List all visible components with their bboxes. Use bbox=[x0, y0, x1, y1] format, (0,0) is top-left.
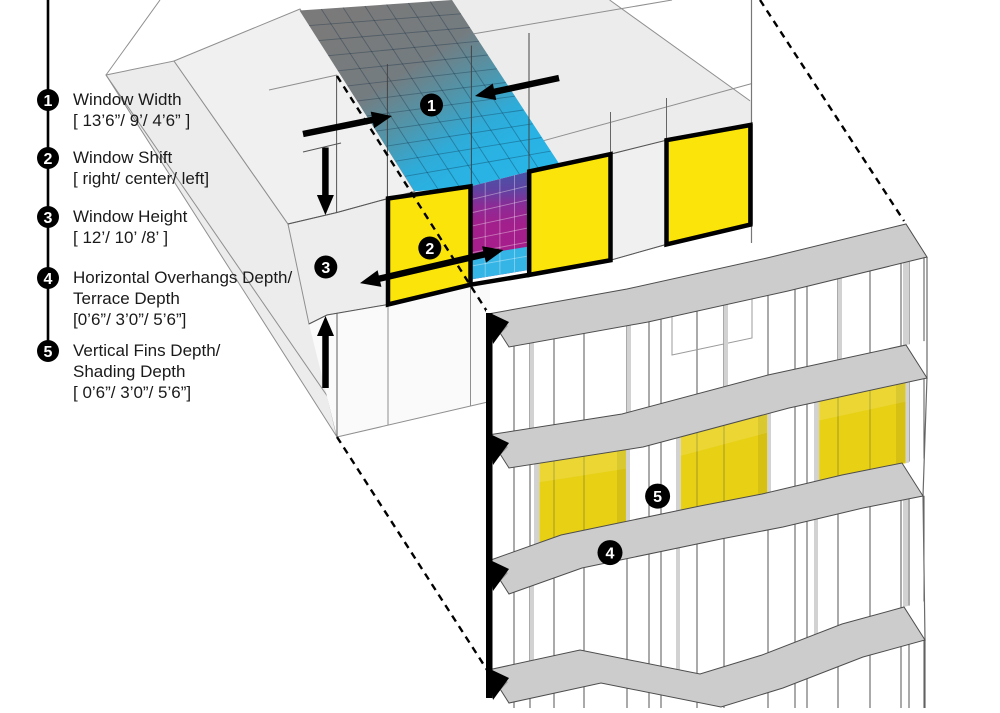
svg-text:[ right/ center/ left]: [ right/ center/ left] bbox=[73, 169, 209, 188]
svg-text:Terrace Depth: Terrace Depth bbox=[73, 289, 180, 308]
svg-text:Horizontal Overhangs Depth/: Horizontal Overhangs Depth/ bbox=[73, 268, 293, 287]
svg-text:Window Height: Window Height bbox=[73, 207, 188, 226]
svg-text:4: 4 bbox=[606, 545, 615, 562]
svg-text:3: 3 bbox=[44, 210, 53, 227]
svg-text:[ 13’6”/ 9’/ 4’6” ]: [ 13’6”/ 9’/ 4’6” ] bbox=[73, 111, 190, 130]
svg-text:2: 2 bbox=[44, 151, 53, 168]
svg-text:Window Width: Window Width bbox=[73, 90, 182, 109]
svg-text:1: 1 bbox=[44, 93, 53, 110]
svg-text:2: 2 bbox=[425, 241, 434, 258]
svg-text:5: 5 bbox=[44, 344, 53, 361]
svg-text:Shading Depth: Shading Depth bbox=[73, 362, 185, 381]
svg-text:[ 12’/ 10’ /8’ ]: [ 12’/ 10’ /8’ ] bbox=[73, 228, 168, 247]
svg-text:Vertical Fins Depth/: Vertical Fins Depth/ bbox=[73, 341, 221, 360]
svg-text:Window Shift: Window Shift bbox=[73, 148, 172, 167]
svg-text:1: 1 bbox=[427, 98, 436, 115]
svg-text:5: 5 bbox=[653, 489, 662, 506]
svg-text:3: 3 bbox=[321, 260, 330, 277]
svg-text:4: 4 bbox=[44, 271, 53, 288]
svg-text:[ 0’6”/ 3’0”/ 5’6”]: [ 0’6”/ 3’0”/ 5’6”] bbox=[73, 383, 191, 402]
svg-text:[0’6”/ 3’0”/ 5’6”]: [0’6”/ 3’0”/ 5’6”] bbox=[73, 310, 186, 329]
